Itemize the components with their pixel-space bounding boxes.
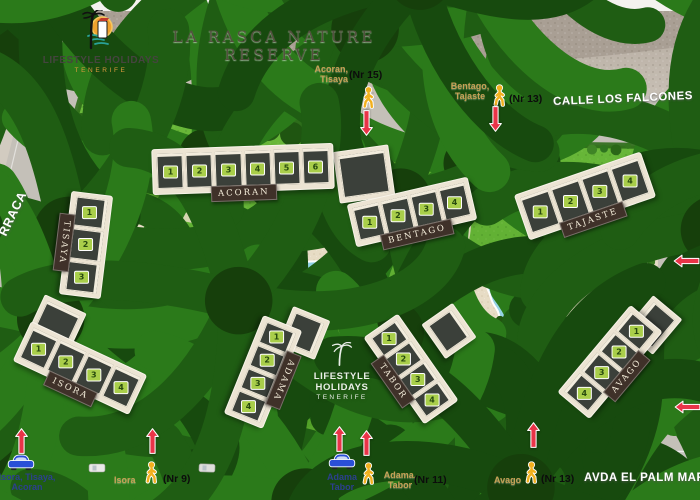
pedestrian-icon (361, 86, 376, 109)
unit-number: 1 (533, 205, 548, 218)
building-acoran: 1 2 3 4 5 6 ACORAN (151, 143, 334, 195)
unit-number: 2 (192, 165, 207, 178)
street-label-avda-el-palm-mar: AVDA EL PALM MAR (584, 472, 700, 484)
car-entrance-label-isora-tisaya-acoran: Isora, Tisaya, Acoran (0, 472, 56, 493)
unit-number: 4 (623, 174, 638, 187)
unit-number: 4 (113, 381, 128, 394)
entrance-label-bentago-tajaste: Bentago, Tajaste (448, 81, 492, 102)
unit-number: 5 (279, 161, 294, 174)
unit-number: 2 (78, 238, 93, 251)
unit-number: 2 (563, 195, 578, 208)
roof-unit: 3 (215, 151, 242, 187)
unit-number: 2 (390, 209, 405, 222)
pedestrian-icon (361, 462, 376, 485)
roof-unit: 1 (156, 153, 183, 189)
roof-unit: 6 (302, 148, 329, 184)
unit-number: 1 (269, 331, 284, 344)
brand-subtitle: TENERIFE (25, 67, 177, 74)
unit-number: 6 (308, 160, 323, 173)
unit-number: 3 (593, 185, 608, 198)
unit-number: 3 (594, 366, 609, 379)
unit-number: 4 (241, 400, 256, 413)
entrance-label-isora: Isora (114, 475, 136, 485)
building-label-acoran: ACORAN (211, 184, 277, 202)
entrance-number-nr9: (Nr 9) (163, 473, 190, 485)
entrance-label-acoran-tisaya: Acoran, Tisaya (302, 64, 348, 85)
entrance-arrow-up-icon (527, 422, 540, 448)
entrance-arrow-up-icon (360, 430, 373, 456)
roof-unit: 2 (186, 152, 213, 188)
unit-number: 1 (163, 166, 178, 179)
entrance-arrow-up-icon (333, 426, 346, 452)
roof-unit: 4 (438, 183, 471, 221)
entrance-arrow-up-icon (146, 428, 159, 454)
car-icon (5, 451, 37, 471)
unit-number: 4 (577, 387, 592, 400)
roof-unit: 1 (73, 197, 107, 230)
entrance-number-nr13-bottom: (Nr 13) (541, 473, 574, 485)
pedestrian-icon (144, 461, 159, 484)
entrance-number-nr13-top: (Nr 13) (509, 93, 542, 105)
entrance-arrow-left-icon (675, 401, 700, 414)
entrance-arrow-left-icon (674, 255, 700, 268)
roof-unit: 5 (273, 149, 300, 185)
entrance-arrow-down-icon (489, 106, 502, 132)
unit-number: 1 (382, 332, 397, 345)
unit-number: 1 (82, 206, 97, 219)
unit-number: 4 (250, 162, 265, 175)
pedestrian-icon (492, 84, 507, 107)
roof-unit: 2 (69, 229, 103, 262)
site-map: S LIFESTYLE HOLIDAYS TENERIFE LA RASCA N… (0, 0, 700, 500)
map-title: LA RASCA NATURE RESERVE (128, 28, 420, 64)
unit-number: 3 (86, 368, 101, 381)
unit-number: 3 (419, 203, 434, 216)
entrance-label-avago: Avago (494, 475, 521, 485)
unit-number: 3 (250, 377, 265, 390)
unit-number: 2 (59, 356, 74, 369)
unit-number: 4 (447, 196, 462, 209)
unit-number: 1 (362, 216, 377, 229)
unit-number: 2 (396, 353, 411, 366)
unit-number: 3 (74, 271, 89, 284)
unit-number: 2 (611, 346, 626, 359)
roof-unit: 3 (65, 261, 99, 294)
unit-number: 2 (260, 354, 275, 367)
roof-units: 1 2 3 4 5 6 (156, 148, 329, 189)
entrance-arrow-down-icon (360, 110, 373, 136)
unit-number: 1 (629, 325, 644, 338)
palm-sun-sea-logo-icon (78, 10, 124, 50)
car-icon (326, 450, 358, 470)
unit-number: 1 (31, 343, 46, 356)
roof-panel (338, 150, 389, 198)
roof-unit: 4 (244, 150, 271, 186)
pedestrian-icon (524, 461, 539, 484)
unit-number: 3 (221, 164, 236, 177)
entrance-number-nr11: (Nr 11) (414, 474, 447, 486)
unit-number: 3 (410, 373, 425, 386)
entrance-number-nr15: (Nr 15) (349, 69, 382, 81)
unit-number: 4 (424, 393, 439, 406)
